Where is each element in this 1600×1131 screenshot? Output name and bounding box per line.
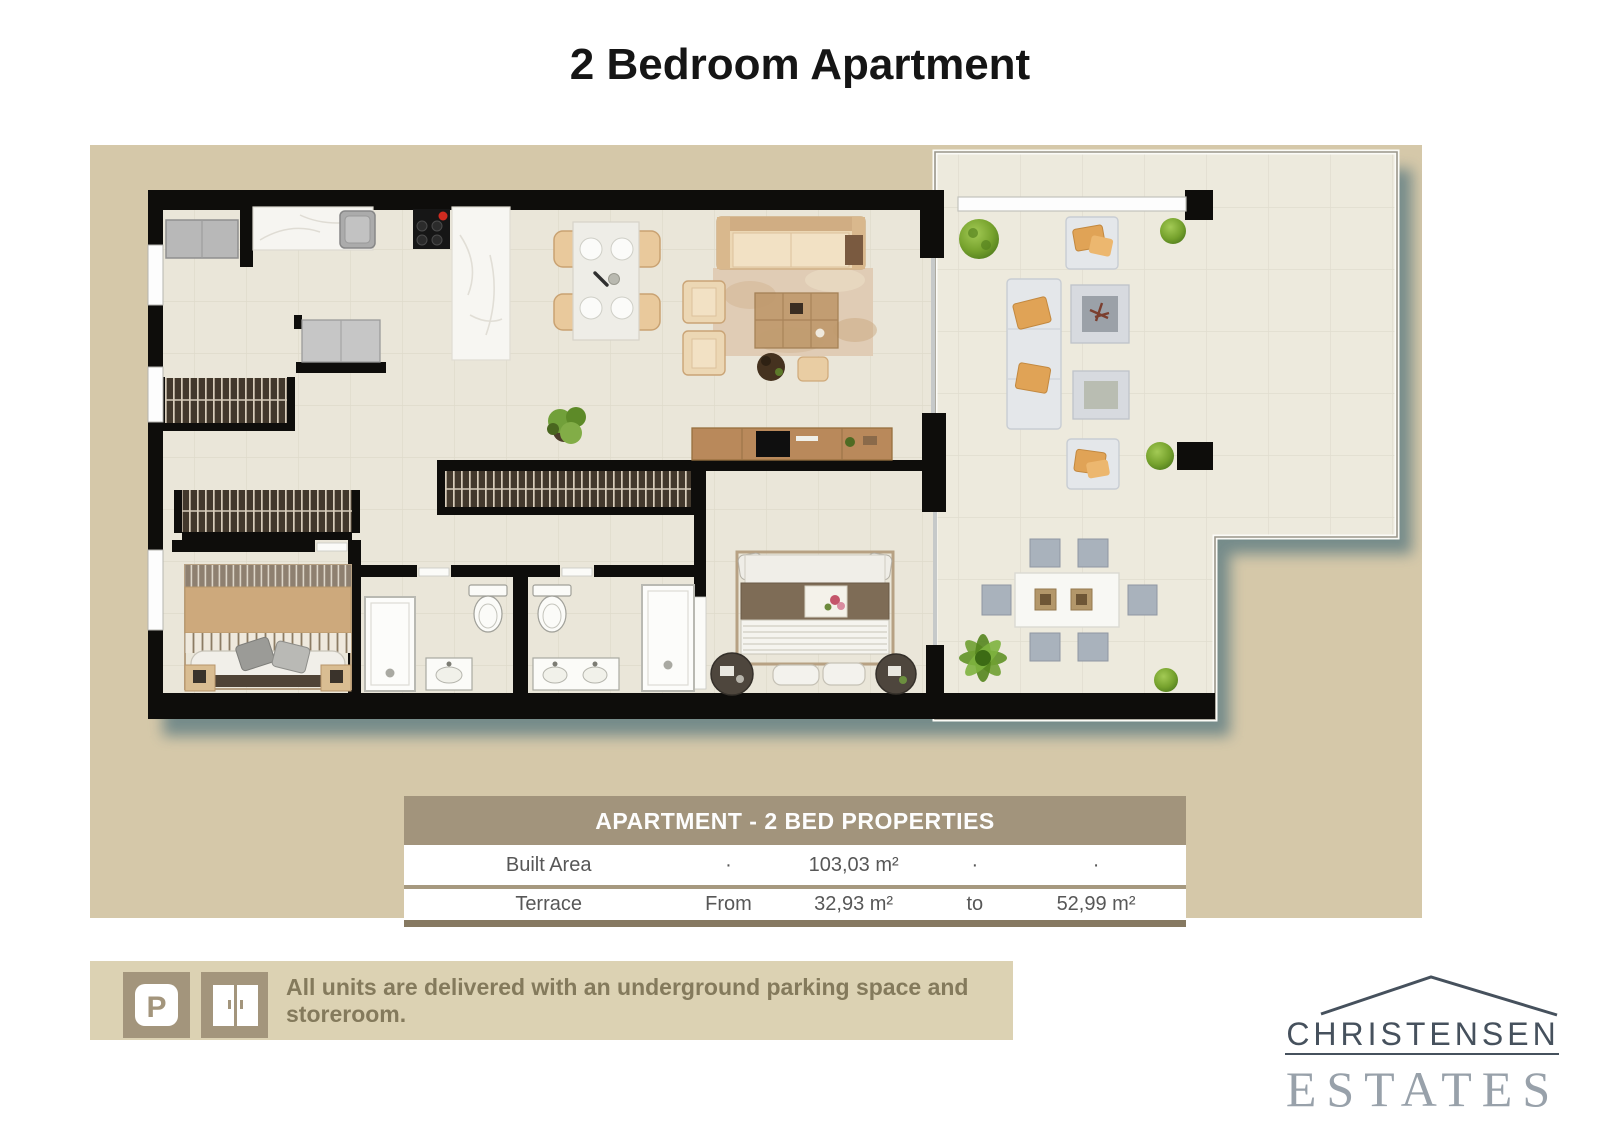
- utility-room: [166, 220, 238, 258]
- terrace-balustrade: [958, 197, 1186, 211]
- bush: [1160, 218, 1186, 244]
- page-title: 2 Bedroom Apartment: [0, 40, 1600, 90]
- coffee-table: [755, 293, 838, 348]
- info-bar: P All units are delivered with an underg…: [90, 961, 1013, 1040]
- brand-logo: CHRISTENSEN ESTATES: [1283, 972, 1563, 1124]
- table-row: Terrace From 32,93 m² to 52,99 m²: [404, 885, 1186, 920]
- outdoor-chair: [982, 585, 1011, 615]
- logo-divider: [1285, 1053, 1559, 1055]
- sheet: [741, 620, 889, 654]
- bathroom1-door: [419, 568, 449, 576]
- double-sink: [533, 658, 619, 690]
- palm-plant: [959, 634, 1007, 682]
- row-to-value: ·: [1006, 854, 1186, 877]
- bush: [1154, 668, 1178, 692]
- parking-icon: P: [123, 972, 190, 1038]
- stove-knob: [439, 212, 448, 221]
- floor-plant: [757, 353, 785, 381]
- dining-table: [573, 222, 639, 340]
- row-label: Terrace: [404, 893, 693, 916]
- kitchen-island: [452, 207, 510, 360]
- row-to-value: 52,99 m²: [1006, 893, 1186, 916]
- table-header: APARTMENT - 2 BED PROPERTIES: [404, 796, 1186, 845]
- bush: [1146, 442, 1174, 470]
- bedroom1-door: [317, 543, 347, 551]
- sofa: [717, 217, 865, 269]
- row-label: Built Area: [404, 854, 693, 877]
- logo-subname: ESTATES: [1283, 1060, 1563, 1118]
- outdoor-chair: [1078, 633, 1108, 661]
- row-value: 32,93 m²: [764, 893, 944, 916]
- table-row: Built Area · 103,03 m² · ·: [404, 845, 1186, 885]
- outdoor-chair: [1128, 585, 1157, 615]
- sink: [426, 658, 472, 690]
- roof-icon: [1283, 972, 1563, 1018]
- ottoman: [798, 357, 828, 381]
- info-bar-text: All units are delivered with an undergro…: [286, 961, 1013, 1040]
- bed-blanket: [185, 565, 351, 587]
- bedroom-1: [185, 565, 351, 691]
- row-from-label: From: [693, 893, 763, 916]
- bench-cushion: [823, 663, 865, 685]
- row-to-label: to: [944, 893, 1007, 916]
- outdoor-chair: [1078, 539, 1108, 567]
- bedroom-2: [711, 552, 916, 695]
- outdoor-chair: [1030, 539, 1060, 567]
- sliding-door-glass: [931, 258, 935, 413]
- outdoor-dining-table: [1015, 573, 1119, 627]
- brochure-page: 2 Bedroom Apartment: [0, 0, 1600, 1131]
- row-from-label: ·: [693, 854, 763, 877]
- shower: [642, 585, 694, 691]
- armchair: [683, 281, 725, 323]
- bench-cushion: [773, 665, 819, 685]
- row-to-label: ·: [944, 854, 1007, 877]
- row-value: 103,03 m²: [764, 854, 944, 877]
- properties-table: APARTMENT - 2 BED PROPERTIES Built Area …: [404, 796, 1186, 927]
- logo-name: CHRISTENSEN: [1283, 1016, 1563, 1053]
- tv: [756, 431, 790, 457]
- outdoor-chair: [1030, 633, 1060, 661]
- tv-console: [692, 428, 892, 460]
- sliding-door-glass: [933, 512, 937, 645]
- storeroom-door-icon: [201, 972, 268, 1038]
- bush: [959, 219, 999, 259]
- armchair: [683, 331, 725, 375]
- bathroom2-door: [562, 568, 592, 576]
